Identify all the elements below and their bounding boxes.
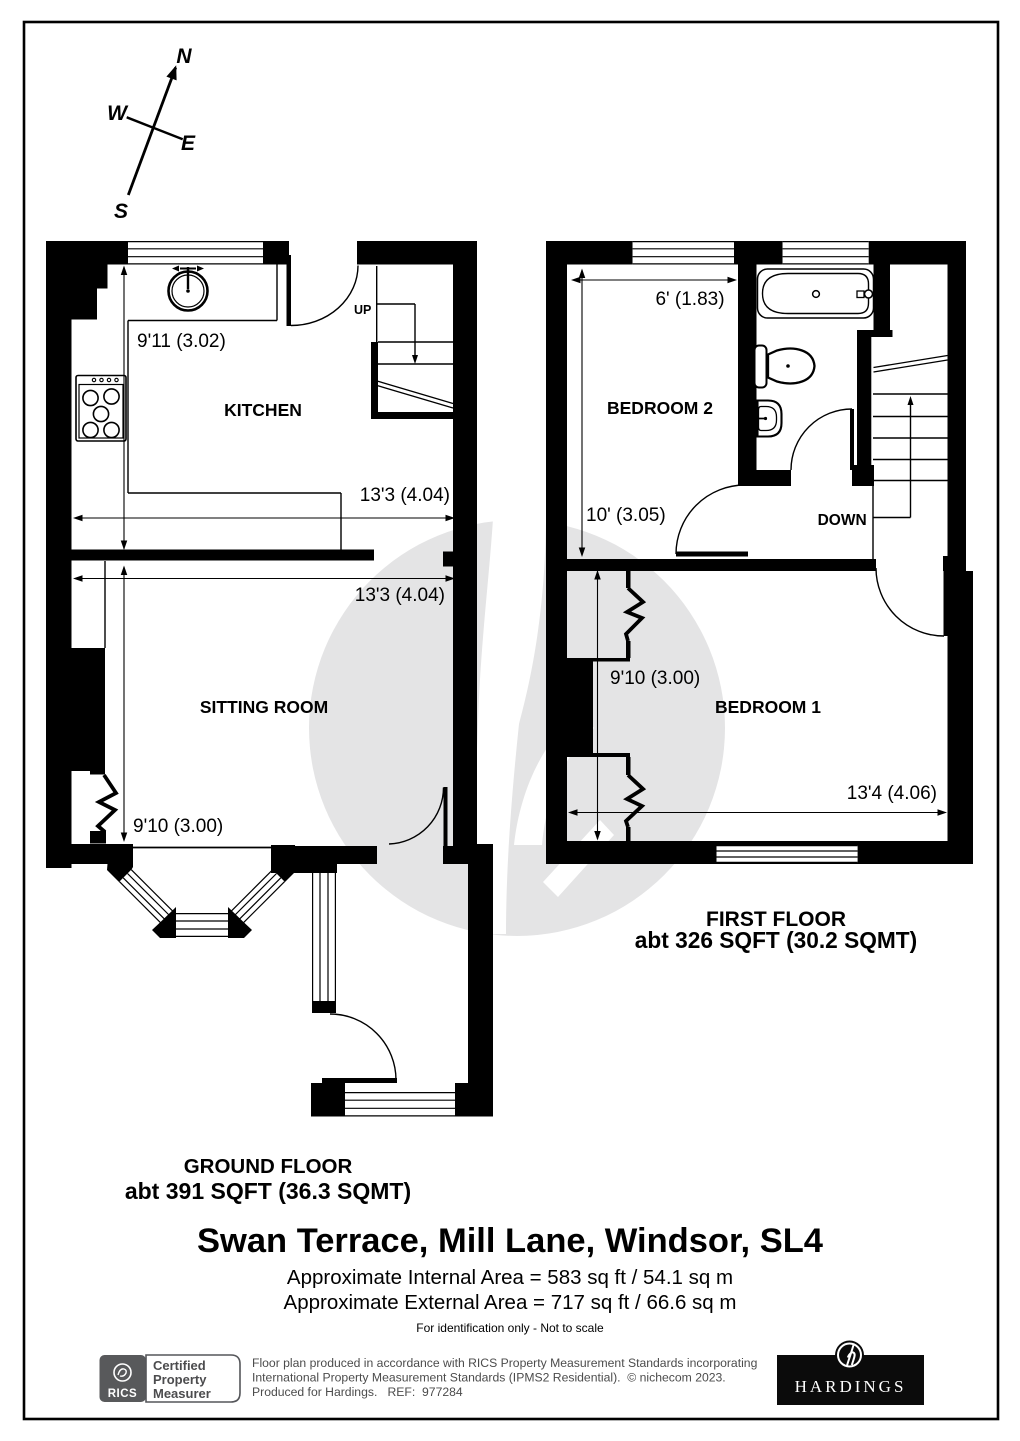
- svg-text:DOWN: DOWN: [818, 512, 867, 529]
- svg-text:Property: Property: [153, 1372, 207, 1387]
- svg-text:KITCHEN: KITCHEN: [224, 400, 302, 420]
- svg-text:E: E: [181, 132, 196, 155]
- svg-text:Floor plan produced in accorda: Floor plan produced in accordance with R…: [252, 1356, 757, 1370]
- svg-text:BEDROOM 1: BEDROOM 1: [715, 697, 821, 717]
- svg-text:9'10 (3.00): 9'10 (3.00): [610, 668, 700, 689]
- svg-text:Certified: Certified: [153, 1358, 206, 1373]
- svg-text:S: S: [114, 200, 128, 223]
- svg-text:GROUND FLOOR: GROUND FLOOR: [184, 1155, 353, 1178]
- svg-text:SITTING ROOM: SITTING ROOM: [200, 697, 328, 717]
- svg-text:13'4 (4.06): 13'4 (4.06): [847, 783, 937, 804]
- svg-text:10' (3.05): 10' (3.05): [586, 505, 666, 526]
- svg-text:Produced for Hardings. REF:: Produced for Hardings. REF: 977284: [252, 1385, 463, 1399]
- svg-text:abt 326 SQFT (30.2 SQMT): abt 326 SQFT (30.2 SQMT): [635, 927, 917, 953]
- svg-text:13'3 (4.04): 13'3 (4.04): [360, 485, 450, 506]
- svg-text:abt 391 SQFT (36.3 SQMT): abt 391 SQFT (36.3 SQMT): [125, 1178, 411, 1204]
- svg-text:13'3 (4.04): 13'3 (4.04): [355, 585, 445, 606]
- svg-text:Swan Terrace, Mill Lane, Winds: Swan Terrace, Mill Lane, Windsor, SL4: [197, 1222, 823, 1260]
- svg-text:HARDINGS: HARDINGS: [795, 1377, 907, 1396]
- svg-text:RICS: RICS: [108, 1388, 137, 1400]
- svg-text:Measurer: Measurer: [153, 1386, 211, 1401]
- svg-text:BEDROOM 2: BEDROOM 2: [607, 398, 713, 418]
- svg-text:N: N: [176, 45, 192, 68]
- svg-text:For identification only - Not: For identification only - Not to scale: [416, 1321, 604, 1335]
- svg-text:9'11 (3.02): 9'11 (3.02): [137, 331, 226, 352]
- svg-text:International Property Measure: International Property Measurement Stand…: [252, 1371, 726, 1385]
- svg-text:6' (1.83): 6' (1.83): [655, 289, 724, 310]
- svg-text:UP: UP: [354, 303, 371, 317]
- svg-text:Approximate Internal Area = 58: Approximate Internal Area = 583 sq ft / …: [287, 1266, 733, 1289]
- svg-text:W: W: [107, 102, 129, 125]
- svg-text:9'10 (3.00): 9'10 (3.00): [133, 816, 223, 837]
- svg-text:Approximate External Area = 71: Approximate External Area = 717 sq ft / …: [284, 1291, 737, 1314]
